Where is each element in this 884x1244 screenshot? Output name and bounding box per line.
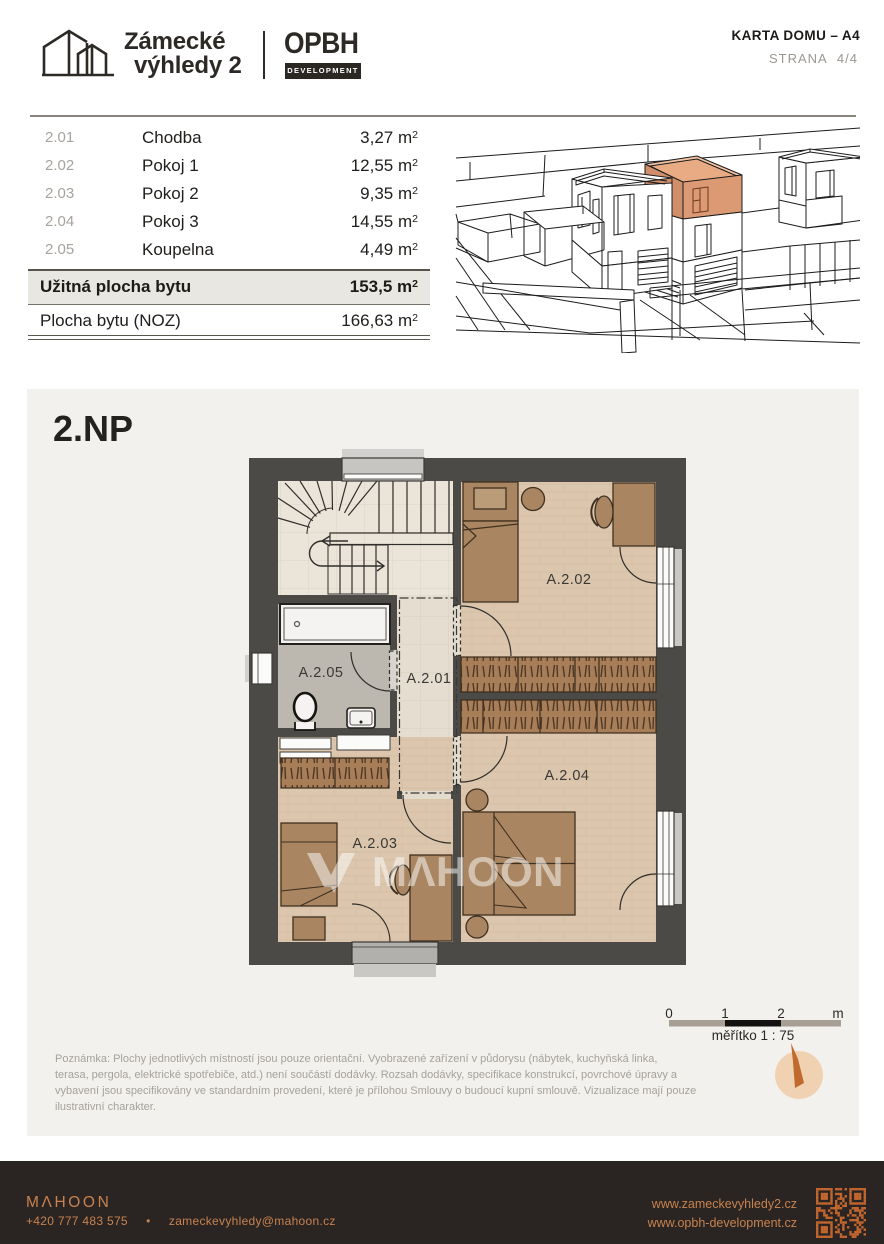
svg-text:1: 1 <box>721 1006 729 1021</box>
svg-text:A.2.05: A.2.05 <box>299 665 344 681</box>
svg-text:m: m <box>832 1006 843 1021</box>
svg-text:A.2.01: A.2.01 <box>407 671 452 687</box>
svg-text:2: 2 <box>777 1006 785 1021</box>
svg-text:A.2.02: A.2.02 <box>547 572 592 588</box>
svg-text:měřítko 1 : 75: měřítko 1 : 75 <box>712 1028 795 1043</box>
svg-text:A.2.04: A.2.04 <box>545 768 590 784</box>
svg-text:0: 0 <box>665 1006 673 1021</box>
svg-text:MΛHOON: MΛHOON <box>372 848 564 895</box>
